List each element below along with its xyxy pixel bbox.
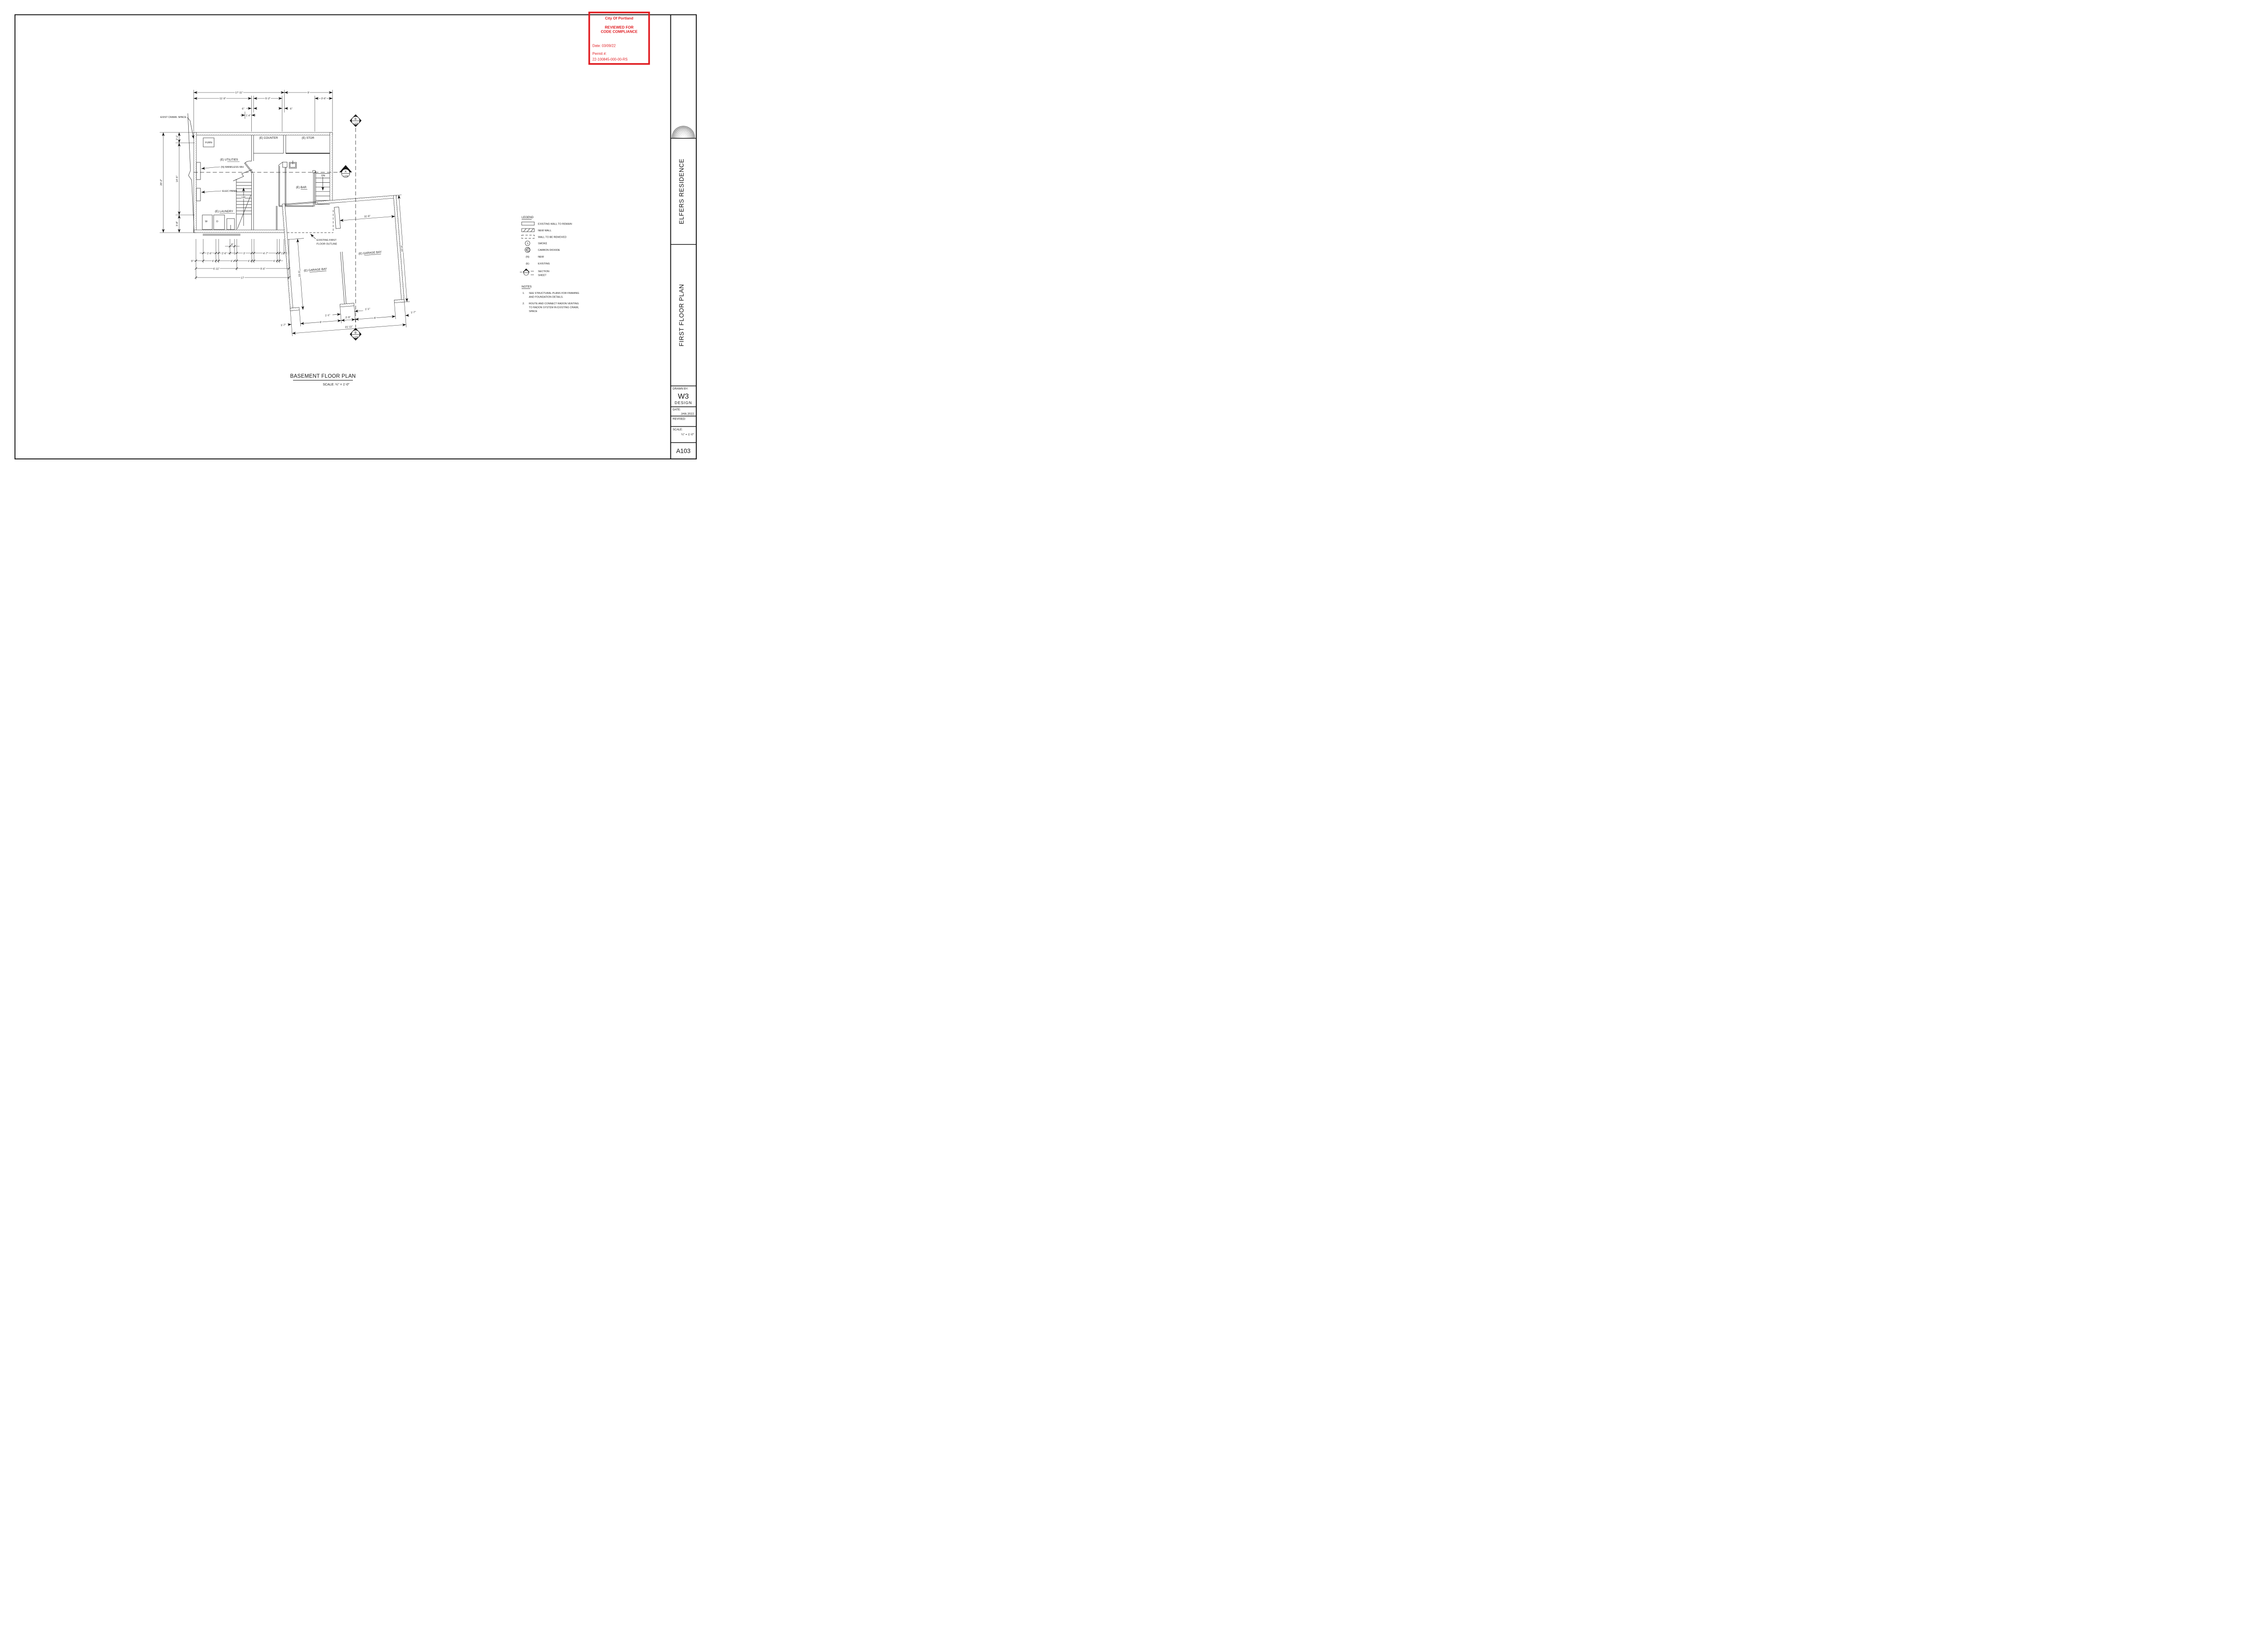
existing-symbol: (E): [526, 263, 529, 265]
svg-text:EXISTING: EXISTING: [538, 263, 550, 265]
svg-text:D: D: [216, 220, 218, 223]
bar-label: (E) BAR: [296, 186, 307, 189]
existing-wall-icon: [522, 222, 534, 225]
bar-counter: [279, 161, 316, 207]
sheet-title: FIRST FLOOR PLAN: [678, 284, 685, 346]
svg-text:(E) STOR: (E) STOR: [302, 136, 314, 140]
svg-text:SPACE: SPACE: [529, 310, 538, 313]
section-legend-icon: [520, 269, 534, 276]
svg-text:B: B: [355, 118, 357, 121]
plan-title: BASEMENT FLOOR PLAN: [290, 374, 356, 379]
stamp-city: City Of Portland: [605, 16, 633, 20]
scale-value: ¼" = 1'-0": [681, 433, 694, 436]
stamp-reviewed: REVIEWED FOR: [605, 25, 633, 29]
svg-text:SEE STRUCTURAL PLANS FOR FRAMI: SEE STRUCTURAL PLANS FOR FRAMING: [529, 292, 579, 295]
svg-text:ROUTE AND CONNECT RADON VENTIN: ROUTE AND CONNECT RADON VENTING: [529, 302, 579, 305]
svg-text:NEW: NEW: [538, 256, 544, 258]
svg-text:AND FOUNDATION DETAILS.: AND FOUNDATION DETAILS.: [529, 296, 563, 299]
dim-4-7: 4'-7": [263, 252, 268, 255]
svg-text:A106: A106: [343, 175, 348, 177]
date-value: JAN 2022: [681, 413, 694, 416]
dim-garage-1-7-left: 1'-7": [281, 324, 286, 327]
dn-label: DN: [321, 175, 325, 177]
dim-14-5: 14'-5": [176, 175, 179, 182]
svg-text:(N) RANKLESS WH: (N) RANKLESS WH: [221, 166, 244, 169]
dim-9-6: 9'-6": [260, 268, 265, 270]
dims-bottom: [191, 239, 289, 279]
notes-body: 1. SEE STRUCTURAL PLANS FOR FRAMING AND …: [523, 292, 579, 313]
sheet-number: A103: [676, 448, 691, 454]
up-label: UP: [242, 196, 245, 199]
svg-text:SHEET: SHEET: [538, 274, 547, 277]
section-marker-a: A A106: [339, 165, 352, 177]
svg-text:B: B: [355, 331, 357, 335]
label-leaders: [201, 167, 221, 192]
stairs-up: [233, 170, 252, 230]
co-symbol: CO: [526, 249, 529, 252]
dim-11-9: 11'-9": [220, 97, 226, 100]
stamp-permit-number: 22-100845-000-00-RS: [592, 58, 628, 62]
dim-garage-21-11: 21'-11": [345, 326, 353, 329]
stamp-compliance: CODE COMPLIANCE: [601, 30, 638, 34]
svg-text:ELEC PANEL: ELEC PANEL: [222, 190, 238, 193]
dim-20-2: 20'-2": [160, 179, 163, 186]
dim-6in-b4: 6": [274, 260, 276, 263]
garage-walls: [282, 195, 404, 311]
removed-wall-icon: [522, 235, 534, 239]
dim-garage-8-left: 8': [320, 321, 322, 324]
dim-6in-left: 6": [242, 108, 244, 111]
dim-6in-b2: 6": [231, 260, 233, 263]
dims-bottom-ticks: [195, 245, 290, 279]
svg-text:FURN: FURN: [205, 141, 212, 144]
crawl-space-label: EXIST CRAWL SPACE: [160, 116, 186, 119]
stamp-permit-label: Permit #:: [592, 52, 606, 56]
svg-text:SECTION: SECTION: [538, 270, 549, 273]
garage-divider: [334, 207, 346, 304]
svg-text:CARBON DIOXIDE: CARBON DIOXIDE: [538, 249, 560, 252]
svg-text:WALL TO BE REMOVED: WALL TO BE REMOVED: [538, 236, 567, 239]
dim-3ft: 3': [243, 252, 245, 255]
svg-text:A106: A106: [353, 336, 358, 338]
dim-6-11: 6'-11": [213, 268, 220, 270]
new-symbol: (N): [526, 256, 529, 258]
legend-labels: EXISTING WALL TO REMAIN NEW WALL WALL TO…: [538, 223, 572, 277]
dim-17ft: 17': [241, 277, 244, 279]
first-floor-outline: [287, 210, 333, 239]
dim-3-8: 3'-8": [176, 221, 179, 226]
dim-9in: 9": [191, 260, 193, 263]
dim-garage-1-1-right: 1'-1": [365, 308, 370, 311]
svg-text:2.: 2.: [523, 302, 525, 305]
dim-2-6-a: 2'-6": [207, 252, 212, 255]
dim-garage-11-6: 11'-6": [364, 215, 370, 218]
dim-6in-b3: 6": [248, 260, 250, 263]
dim-garage-15-5: 15'-5": [298, 270, 301, 277]
svg-text:TO RADON SYSTEM IN EXISTING CR: TO RADON SYSTEM IN EXISTING CRAWL: [529, 307, 579, 309]
svg-text:EXISTING WALL TO REMAIN: EXISTING WALL TO REMAIN: [538, 223, 572, 226]
drawing-sheet: EXIST CRAWL SPACE UP: [0, 0, 711, 474]
scale-label: SCALE:: [673, 428, 683, 431]
dim-2-6-b: 2'-6": [222, 252, 227, 255]
first-floor-outline-label2: FLOOR OUTLINE: [317, 243, 337, 246]
dim-garage-1-1-left: 1'-1": [325, 314, 330, 317]
basement-walls: [194, 132, 332, 233]
dim-17-11: 17'-11": [235, 92, 243, 94]
room-label-underlines: [220, 162, 240, 214]
dim-8in: 8": [231, 244, 234, 246]
smoke-symbol: S: [527, 243, 528, 245]
dim-1-4: 1'-4": [246, 114, 250, 117]
section-marker-b-bottom: B A106: [350, 328, 362, 341]
svg-text:1.: 1.: [523, 292, 525, 295]
dim-garage-8-right: 8': [374, 317, 376, 320]
svg-text:(E) COUNTER: (E) COUNTER: [259, 136, 278, 140]
revised-label: REVISED:: [673, 418, 686, 421]
new-wall-icon: [522, 229, 534, 232]
section-marker-b-top: B A106: [350, 114, 362, 127]
dim-6in-right: 6": [290, 108, 292, 111]
garage-dimensions: [279, 195, 412, 336]
stamp-date: Date: 03/09/22: [592, 44, 616, 48]
svg-text:A106: A106: [353, 122, 358, 125]
project-name: ELFERS RESIDENCE: [678, 159, 685, 224]
crawl-space-breakline: [187, 113, 194, 233]
dim-9ft: 9': [308, 92, 309, 94]
dim-garage-1-7-right: 1'-7": [411, 311, 416, 314]
first-floor-outline-label1: EXISTING FIRST: [317, 239, 337, 242]
dims-top: [194, 90, 332, 132]
dim-garage-20-0: 20'-0": [401, 245, 404, 252]
notes-title: NOTES: [522, 285, 532, 288]
dim-2-1: 2'-1": [176, 135, 179, 140]
legend-title: LEGEND: [522, 216, 534, 219]
dim-6in-b1: 6": [212, 260, 215, 263]
svg-text:(E) LAUNDRY: (E) LAUNDRY: [215, 210, 234, 213]
dim-3-6: 3'-6": [321, 97, 326, 100]
drawn-by-name: W3: [678, 393, 689, 400]
date-label: DATE:: [673, 408, 681, 411]
svg-text:(E) UTILITIES: (E) UTILITIES: [220, 158, 238, 161]
dim-garage-2-9: 2'-9": [345, 316, 351, 319]
w3-design-logo: [672, 126, 695, 138]
svg-text:NEW WALL: NEW WALL: [538, 229, 552, 232]
svg-text:W: W: [205, 220, 208, 223]
drawn-by-label: DRAWN BY:: [673, 387, 689, 390]
plan-scale: SCALE: ¼" = 1'-0": [323, 382, 350, 386]
dim-5-2: 5'-2": [265, 97, 270, 100]
drawn-by-sub: DESIGN: [675, 400, 692, 405]
room-labels: FURN (E) COUNTER (E) STOR (E) UTILITIES …: [205, 136, 314, 223]
dim-1ft: 1': [281, 252, 283, 255]
code-compliance-stamp: City Of Portland REVIEWED FOR CODE COMPL…: [589, 13, 649, 64]
svg-text:SMOKE: SMOKE: [538, 243, 547, 245]
